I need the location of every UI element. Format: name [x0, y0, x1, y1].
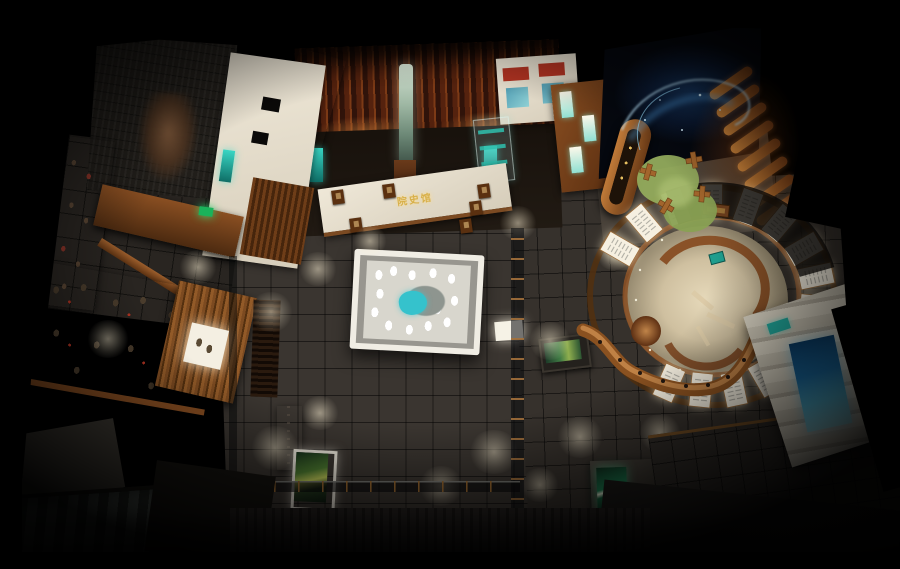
vignette-overlay	[0, 0, 900, 569]
museum-floorplan-render: 院史馆	[0, 0, 900, 569]
